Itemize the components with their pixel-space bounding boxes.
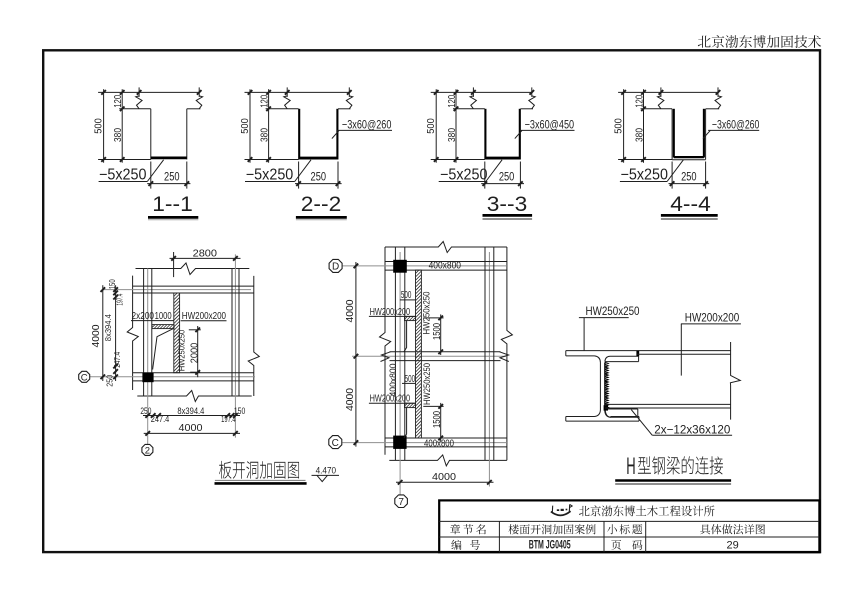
svg-text:4000: 4000 [179, 422, 203, 434]
svg-text:−5x250: −5x250 [621, 167, 669, 184]
svg-text:2--2: 2--2 [301, 193, 342, 216]
svg-text:250: 250 [164, 172, 180, 184]
svg-text:150: 150 [107, 279, 117, 289]
svg-text:500: 500 [425, 118, 437, 134]
svg-text:29: 29 [726, 540, 738, 552]
svg-text:2x200: 2x200 [132, 310, 155, 322]
svg-text:−3x60@450: −3x60@450 [525, 118, 575, 132]
svg-text:4000: 4000 [91, 324, 102, 347]
svg-text:250: 250 [499, 172, 515, 184]
svg-text:120: 120 [112, 95, 124, 108]
svg-text:247.4: 247.4 [151, 414, 170, 425]
svg-text:380: 380 [633, 128, 645, 142]
svg-text:2x−12x36x120: 2x−12x36x120 [654, 422, 730, 436]
svg-text:−5x250: −5x250 [246, 167, 294, 184]
svg-text:500: 500 [613, 118, 625, 134]
svg-text:250: 250 [311, 172, 327, 184]
svg-text:3--3: 3--3 [487, 193, 528, 216]
svg-text:HW250x250: HW250x250 [422, 363, 433, 405]
svg-text:HW250x250: HW250x250 [177, 329, 186, 371]
svg-text:D: D [332, 262, 339, 273]
svg-text:−5x250: −5x250 [440, 167, 488, 184]
svg-text:C: C [332, 438, 339, 449]
svg-text:−5x250: −5x250 [99, 167, 147, 184]
svg-text:250: 250 [104, 374, 114, 386]
svg-text:250: 250 [140, 406, 151, 417]
svg-text:197.4: 197.4 [115, 293, 125, 305]
svg-text:HW200x200: HW200x200 [370, 392, 411, 404]
svg-text:−3x60@260: −3x60@260 [342, 118, 392, 132]
svg-text:4000: 4000 [345, 388, 356, 411]
svg-text:HW250x250: HW250x250 [422, 292, 433, 335]
svg-text:H: H [626, 453, 635, 480]
svg-text:HW200x200: HW200x200 [182, 310, 226, 322]
svg-text:500: 500 [239, 118, 251, 134]
svg-text:2800: 2800 [193, 247, 218, 259]
svg-text:380: 380 [258, 128, 270, 142]
svg-text:120: 120 [446, 95, 458, 108]
svg-text:380: 380 [446, 128, 458, 142]
svg-text:4--4: 4--4 [670, 193, 711, 216]
svg-text:2: 2 [145, 446, 150, 457]
svg-text:1500: 1500 [432, 323, 443, 340]
svg-text:8x394.4: 8x394.4 [177, 406, 204, 417]
svg-text:150: 150 [234, 406, 246, 417]
svg-text:C: C [81, 372, 88, 383]
svg-text:−3x60@260: −3x60@260 [712, 118, 760, 132]
svg-text:4000: 4000 [345, 299, 356, 322]
svg-text:500: 500 [93, 118, 105, 134]
svg-text:400x800: 400x800 [424, 439, 454, 450]
svg-text:1--1: 1--1 [152, 193, 193, 216]
svg-text:250: 250 [681, 172, 697, 184]
svg-text:BTM JG0405: BTM JG0405 [529, 540, 571, 552]
svg-text:247.4: 247.4 [112, 352, 122, 368]
svg-text:8x394.4: 8x394.4 [103, 314, 113, 341]
svg-text:4.470: 4.470 [316, 465, 337, 475]
svg-text:HW250x250: HW250x250 [586, 304, 640, 318]
svg-text:1000: 1000 [155, 310, 172, 322]
svg-text:1500: 1500 [432, 411, 443, 428]
svg-text:2000: 2000 [188, 343, 200, 364]
svg-text:120: 120 [258, 95, 270, 108]
svg-text:7: 7 [398, 497, 404, 508]
svg-text:400x800: 400x800 [429, 260, 462, 271]
svg-text:380: 380 [112, 128, 124, 142]
svg-text:HW200x200: HW200x200 [685, 310, 740, 324]
svg-text:120: 120 [633, 95, 645, 108]
svg-text:4000: 4000 [432, 471, 456, 483]
